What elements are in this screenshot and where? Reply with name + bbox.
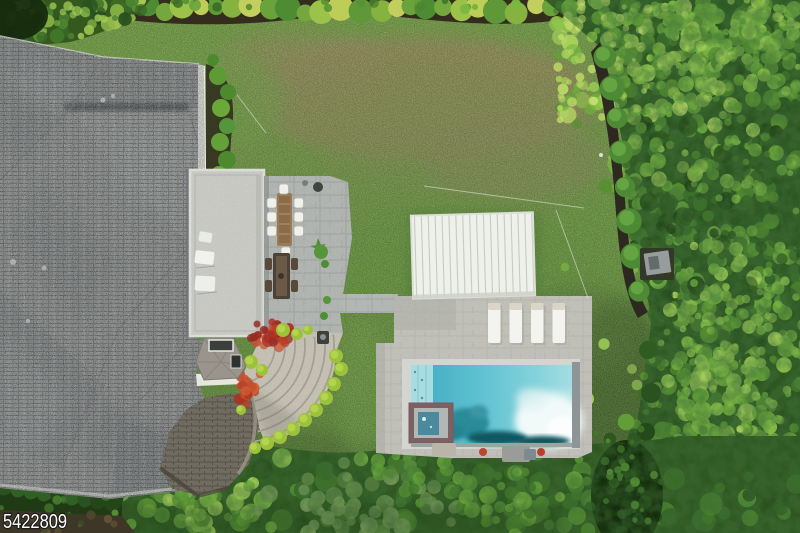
svg-text:5422809: 5422809 <box>3 511 67 533</box>
